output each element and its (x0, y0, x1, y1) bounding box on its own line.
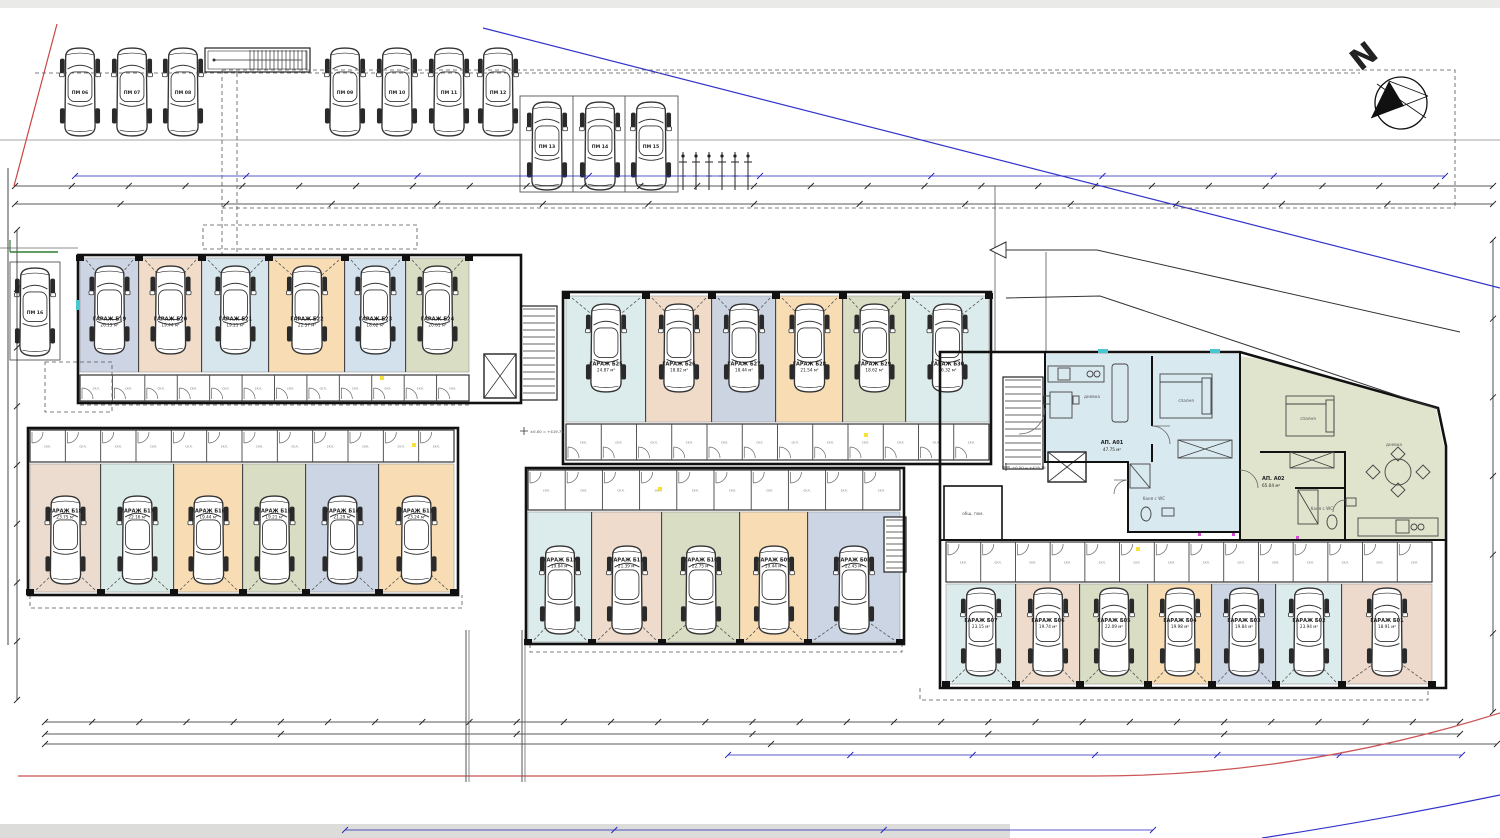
a02-room-bedroom: спалня (1300, 416, 1316, 421)
fixture-marker (1198, 533, 1201, 536)
bollard-head (681, 154, 684, 157)
storage-label: скл. (221, 445, 228, 449)
storage-label: скл. (721, 441, 728, 445)
window-marker (76, 300, 80, 310)
fixture-marker (1296, 536, 1299, 539)
common-room-label: общ. пом. (962, 511, 984, 516)
parking-spot-label: ПМ 09 (337, 90, 353, 96)
stair-walkline-start (213, 59, 216, 62)
pillar (902, 293, 910, 299)
window-marker (1098, 349, 1108, 353)
storage-label: скл. (44, 445, 51, 449)
car-icon (150, 266, 191, 354)
storage-label: скл. (1203, 561, 1210, 565)
floor-plan-canvas: ГАРАЖ Б1926.15 м²ГАРАЖ Б2019.44 м²ГАРАЖ … (0, 0, 1500, 838)
parking-spot-label: ПМ 16 (27, 310, 43, 316)
bollard-head (720, 154, 723, 157)
storage-label: скл. (190, 387, 197, 391)
storage-label: скл. (397, 445, 404, 449)
car-icon (1159, 588, 1200, 676)
storage-label: скл. (580, 489, 587, 493)
light-marker (658, 487, 662, 491)
car-icon (417, 266, 458, 354)
bollard-head (733, 154, 736, 157)
pillar (1012, 681, 1020, 687)
parking-spot-label: ПМ 12 (490, 90, 506, 96)
bollard-head (694, 154, 697, 157)
storage-label: скл. (256, 445, 263, 449)
storage-label: скл. (222, 387, 229, 391)
storage-label: скл. (841, 489, 848, 493)
car-icon (1223, 588, 1264, 676)
pillar (942, 681, 950, 687)
light-marker (1136, 547, 1140, 551)
storage-label: скл. (862, 441, 869, 445)
car-icon (215, 266, 256, 354)
pillar (1428, 681, 1436, 687)
storage-label: скл. (157, 387, 164, 391)
storage-label: скл. (803, 489, 810, 493)
storage-label: скл. (729, 489, 736, 493)
pillar (1208, 681, 1216, 687)
car-icon (355, 266, 396, 354)
storage-label: скл. (1376, 561, 1383, 565)
storage-label: скл. (417, 387, 424, 391)
pillar (1272, 681, 1280, 687)
storage-label: скл. (125, 387, 132, 391)
pillar (1076, 681, 1084, 687)
pillar (642, 293, 650, 299)
storage-label: скл. (766, 489, 773, 493)
bollard-head (746, 154, 749, 157)
car-icon (658, 304, 699, 392)
storage-label: скл. (827, 441, 834, 445)
fixture-marker (1232, 533, 1235, 536)
storage-label: скл. (692, 489, 699, 493)
storage-label: скл. (185, 445, 192, 449)
parking-spot-label: ПМ 14 (592, 144, 608, 150)
storage-label: скл. (362, 445, 369, 449)
apartment-a02-area: 65.04 м² (1262, 483, 1280, 488)
apartment-a02-name: АП. А02 (1262, 476, 1285, 482)
parking-spot-label: ПМ 08 (175, 90, 191, 96)
car-icon (960, 588, 1001, 676)
a01-room-bath: баня с WC (1143, 496, 1166, 501)
level-mark-label: ±0.00 = +419.75 (530, 429, 564, 434)
storage-label: скл. (792, 441, 799, 445)
light-marker (412, 443, 416, 447)
parking-spot-label: ПМ 11 (441, 90, 457, 96)
top-margin-band (0, 0, 1500, 8)
storage-label: скл. (615, 441, 622, 445)
apartment-a01-name: АП. А01 (1101, 440, 1124, 446)
pillar (839, 293, 847, 299)
level-mark-label: ±0.00 = +419.75 (1012, 465, 1046, 470)
storage-label: скл. (79, 445, 86, 449)
car-icon (1093, 588, 1134, 676)
storage-label: скл. (1133, 561, 1140, 565)
a02-room-living: дневна (1386, 442, 1402, 447)
storage-label: скл. (327, 445, 334, 449)
car-icon (723, 304, 764, 392)
a01-room-bedroom: спалня (1178, 398, 1194, 403)
storage-label: скл. (960, 561, 967, 565)
car-icon (789, 304, 830, 392)
storage-label: скл. (968, 441, 975, 445)
parking-spot-label: ПМ 06 (72, 90, 88, 96)
storage-label: скл. (150, 445, 157, 449)
storage-label: скл. (1342, 561, 1349, 565)
storage-label: скл. (1029, 561, 1036, 565)
parking-spot-label: ПМ 13 (539, 144, 555, 150)
storage-label: скл. (320, 387, 327, 391)
car-icon (927, 304, 968, 392)
storage-label: скл. (93, 387, 100, 391)
car-icon (854, 304, 895, 392)
light-marker (864, 433, 868, 437)
storage-label: скл. (1237, 561, 1244, 565)
a01-room-living: дневна (1084, 394, 1100, 399)
storage-label: скл. (651, 441, 658, 445)
storage-label: скл. (291, 445, 298, 449)
storage-label: скл. (994, 561, 1001, 565)
storage-label: скл. (878, 489, 885, 493)
car-icon (89, 266, 130, 354)
car-icon (585, 304, 626, 392)
parking-spot-label: ПМ 15 (643, 144, 659, 150)
car-icon (1288, 588, 1329, 676)
storage-label: скл. (933, 441, 940, 445)
car-icon (286, 266, 327, 354)
storage-label: скл. (1064, 561, 1071, 565)
a02-room-bath: баня с WC (1311, 506, 1334, 511)
pillar (1144, 681, 1152, 687)
storage-label: скл. (1099, 561, 1106, 565)
storage-label: скл. (115, 445, 122, 449)
car-icon (1366, 588, 1407, 676)
car-icon (1027, 588, 1068, 676)
parking-spot-label: ПМ 10 (389, 90, 405, 96)
light-marker (380, 376, 384, 380)
storage-label: скл. (1168, 561, 1175, 565)
storage-label: скл. (352, 387, 359, 391)
pillar (708, 293, 716, 299)
apartment-a01-area: 47.75 м² (1103, 447, 1121, 452)
bottom-road-band (0, 824, 1010, 838)
storage-label: скл. (384, 387, 391, 391)
storage-label: скл. (897, 441, 904, 445)
storage-label: скл. (1307, 561, 1314, 565)
storage-label: скл. (449, 387, 456, 391)
window-marker (1210, 349, 1220, 353)
storage-label: скл. (756, 441, 763, 445)
pillar (772, 293, 780, 299)
storage-label: скл. (287, 387, 294, 391)
pillar (1338, 681, 1346, 687)
storage-label: скл. (686, 441, 693, 445)
storage-label: скл. (433, 445, 440, 449)
bollard-head (707, 154, 710, 157)
parking-spot-label: ПМ 07 (124, 90, 140, 96)
storage-label: скл. (617, 489, 624, 493)
storage-label: скл. (1411, 561, 1418, 565)
storage-label: скл. (1272, 561, 1279, 565)
storage-label: скл. (255, 387, 262, 391)
storage-label: скл. (580, 441, 587, 445)
storage-label: скл. (543, 489, 550, 493)
staircase (1003, 377, 1043, 469)
floor-plan-svg: ГАРАЖ Б1926.15 м²ГАРАЖ Б2019.44 м²ГАРАЖ … (0, 0, 1500, 838)
